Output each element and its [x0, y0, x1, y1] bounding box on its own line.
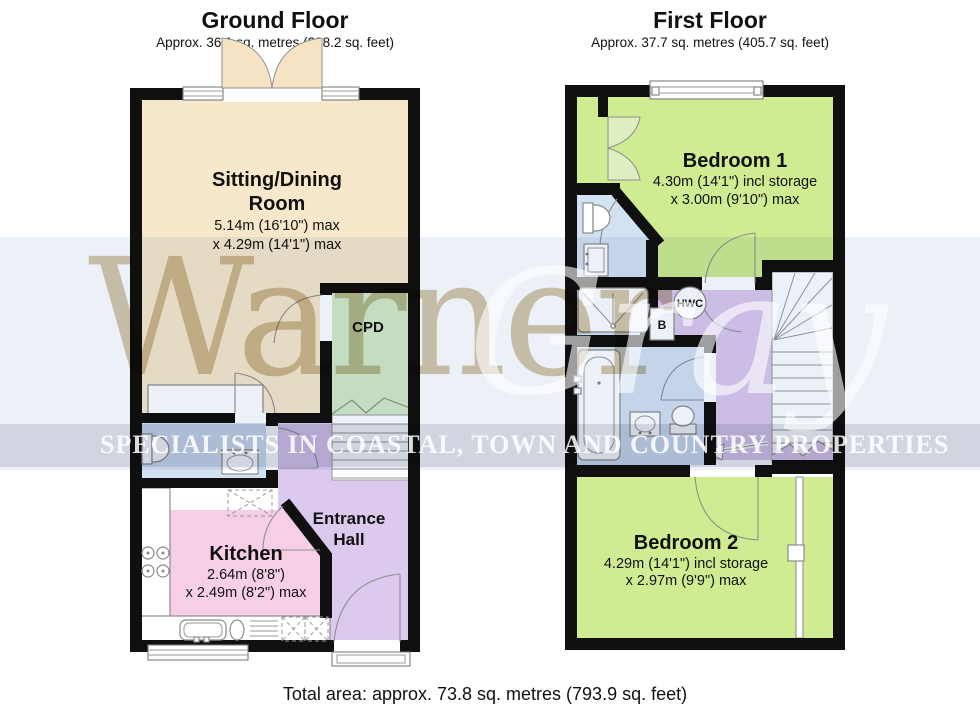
- sitting-room-label: Sitting/Dining: [212, 169, 342, 191]
- kitchen-dim2: x 2.49m (8'2") max: [186, 585, 307, 601]
- bedroom2-dim1: 4.29m (14'1") incl storage: [604, 556, 768, 572]
- porch-step: [332, 652, 410, 666]
- kitchen-label: Kitchen: [209, 543, 282, 565]
- french-door-right: [272, 38, 322, 88]
- floorplan-page: Ground Floor Approx. 36.1 sq. metres (38…: [0, 0, 980, 712]
- window: [183, 87, 223, 100]
- entrance-hall-label2: Hall: [333, 530, 364, 549]
- window: [148, 645, 248, 660]
- watermark-tagline: SPECIALISTS IN COASTAL, TOWN AND COUNTRY…: [100, 430, 790, 460]
- watermark-word2: Gray: [468, 248, 887, 420]
- window: [650, 81, 763, 99]
- bedroom2-dim2: x 2.97m (9'9") max: [626, 573, 747, 589]
- entrance-hall-label: Entrance: [313, 509, 386, 528]
- bedroom1-label: Bedroom 1: [683, 150, 787, 172]
- bedroom1-dim1: 4.30m (14'1") incl storage: [653, 174, 817, 190]
- sitting-room-label2: Room: [249, 193, 306, 215]
- kitchen-dim1: 2.64m (8'8"): [207, 567, 285, 583]
- bedroom2-label: Bedroom 2: [634, 532, 738, 554]
- bedroom1-dim2: x 3.00m (9'10") max: [671, 192, 801, 208]
- french-door-left: [222, 38, 272, 88]
- window: [322, 87, 359, 100]
- first-windows: [650, 81, 763, 99]
